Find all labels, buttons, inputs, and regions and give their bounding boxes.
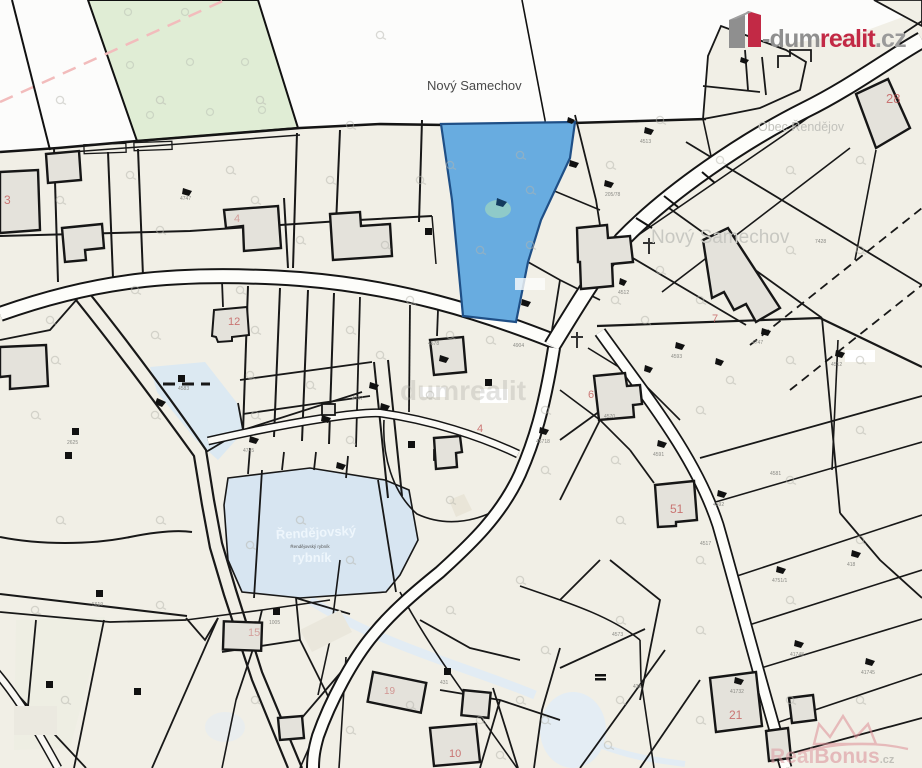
- svg-text:4517: 4517: [700, 541, 711, 547]
- svg-text:Řendějovský rybník: Řendějovský rybník: [290, 542, 330, 549]
- svg-text:4751/1: 4751/1: [772, 578, 788, 584]
- svg-text:7428: 7428: [815, 239, 826, 245]
- svg-text:Nový Samechov: Nový Samechov: [651, 227, 790, 248]
- svg-text:4583: 4583: [178, 386, 189, 392]
- svg-text:431: 431: [440, 680, 449, 686]
- svg-text:12: 12: [228, 316, 240, 328]
- svg-text:10: 10: [449, 748, 461, 760]
- svg-text:4513: 4513: [640, 139, 651, 145]
- svg-text:6: 6: [588, 389, 594, 401]
- svg-text:4593: 4593: [671, 354, 682, 360]
- svg-text:RealBonus.cz: RealBonus.cz: [770, 745, 895, 768]
- svg-text:rybník: rybník: [292, 550, 332, 565]
- svg-text:51: 51: [670, 502, 684, 516]
- svg-text:4591: 4591: [653, 452, 664, 458]
- svg-text:4512: 4512: [618, 290, 629, 296]
- svg-text:4904: 4904: [513, 343, 524, 349]
- svg-text:Nový Samechov: Nový Samechov: [427, 78, 522, 93]
- svg-text:41748: 41748: [790, 652, 804, 658]
- svg-text:4573: 4573: [612, 632, 623, 638]
- svg-text:4745: 4745: [243, 448, 254, 454]
- svg-text:dumrealit: dumrealit: [400, 375, 526, 406]
- svg-text:7: 7: [712, 313, 718, 325]
- svg-text:21: 21: [729, 708, 743, 722]
- svg-text:4747: 4747: [752, 340, 763, 346]
- svg-text:4592: 4592: [713, 502, 724, 508]
- svg-text:4: 4: [234, 213, 240, 225]
- svg-text:4: 4: [477, 423, 483, 435]
- svg-text:-dumrealit.cz: -dumrealit.cz: [762, 25, 906, 53]
- svg-text:418: 418: [847, 562, 856, 568]
- svg-text:4578: 4578: [428, 341, 439, 347]
- svg-text:1005: 1005: [269, 620, 280, 626]
- svg-text:41745: 41745: [861, 670, 875, 676]
- svg-text:15: 15: [248, 627, 260, 639]
- svg-text:28: 28: [886, 91, 900, 106]
- svg-text:Obec Řendějov: Obec Řendějov: [758, 119, 845, 134]
- svg-text:45718: 45718: [536, 439, 550, 445]
- svg-text:205/78: 205/78: [605, 192, 621, 198]
- svg-text:4570: 4570: [604, 414, 615, 420]
- svg-text:19: 19: [384, 686, 396, 697]
- svg-text:41732: 41732: [730, 689, 744, 695]
- svg-text:4747: 4747: [180, 196, 191, 202]
- svg-text:3: 3: [4, 193, 11, 207]
- svg-text:438: 438: [633, 684, 642, 690]
- svg-text:4747: 4747: [352, 396, 363, 402]
- svg-text:4581: 4581: [770, 471, 781, 477]
- svg-text:2625: 2625: [67, 440, 78, 446]
- svg-text:4512: 4512: [831, 362, 842, 368]
- svg-text:5619: 5619: [92, 602, 103, 608]
